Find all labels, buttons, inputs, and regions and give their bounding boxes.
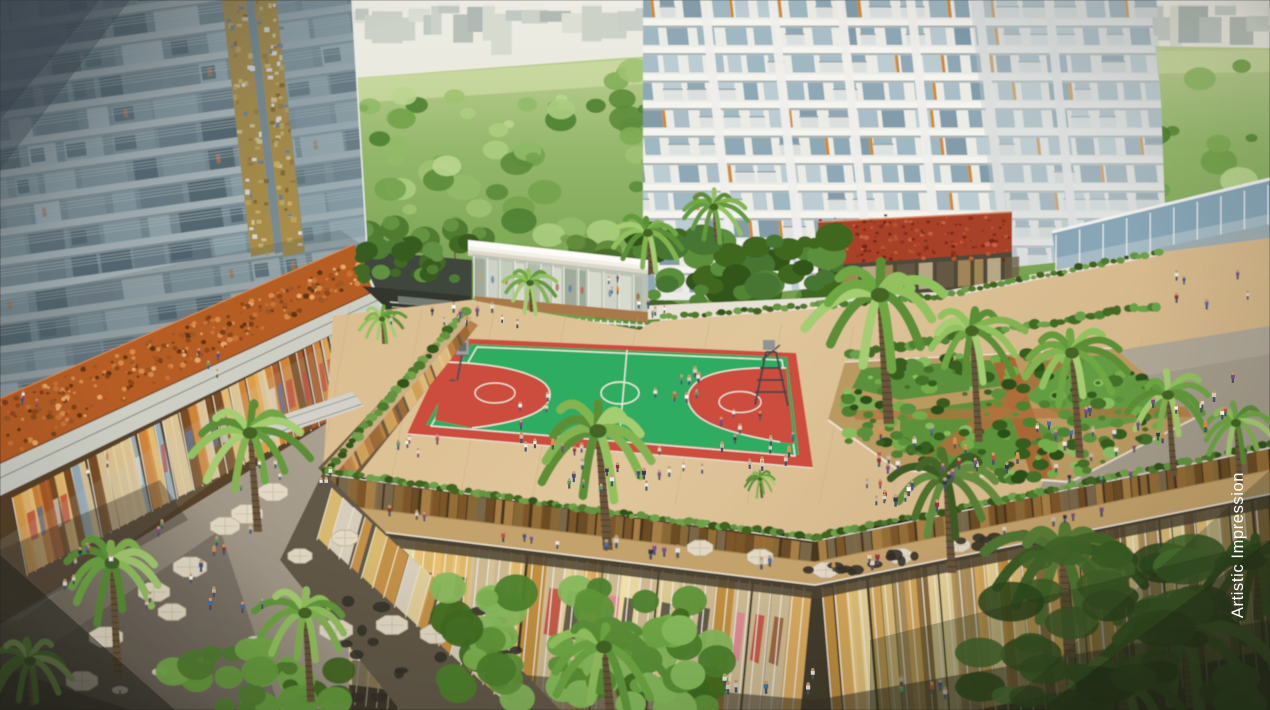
svg-text:Artistic Impression: Artistic Impression	[1229, 472, 1247, 618]
